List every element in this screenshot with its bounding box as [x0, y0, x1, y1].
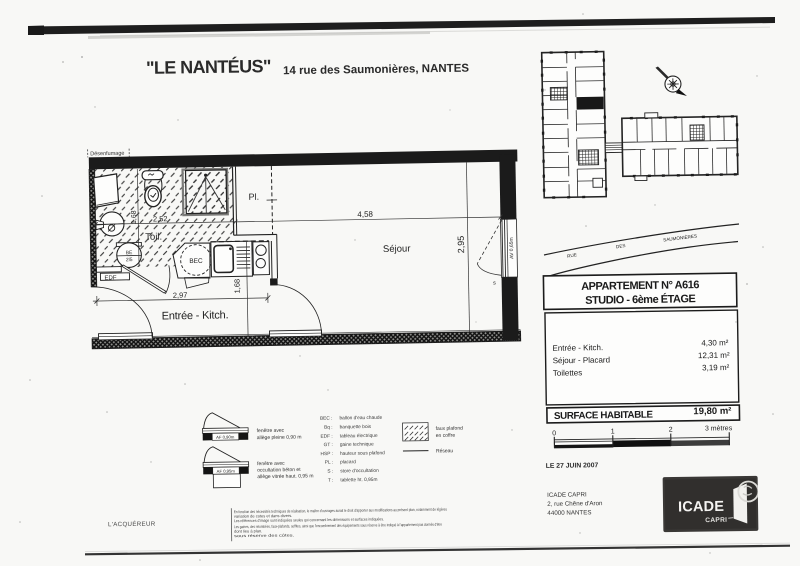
svg-text:3,19 m²: 3,19 m²: [702, 363, 730, 372]
svg-text:PL :: PL :: [325, 460, 333, 466]
svg-text:EDF :: EDF :: [320, 434, 332, 440]
svg-text:3 mètres: 3 mètres: [705, 425, 733, 432]
svg-text:BEC :: BEC :: [320, 416, 333, 422]
svg-text:fenêtre avec: fenêtre avec: [257, 428, 285, 434]
svg-text:fenêtre avec: fenêtre avec: [257, 461, 285, 467]
svg-text:4,58: 4,58: [357, 210, 373, 219]
svg-text:12,31 m²: 12,31 m²: [698, 351, 730, 360]
svg-text:1,68: 1,68: [131, 210, 138, 224]
svg-text:T :: T :: [328, 478, 334, 484]
svg-text:Entrée - Kitch.: Entrée - Kitch.: [162, 309, 229, 322]
svg-text:Toilettes: Toilettes: [553, 368, 582, 377]
svg-text:AV 0,65m: AV 0,65m: [509, 237, 515, 259]
svg-text:2,95: 2,95: [456, 236, 466, 254]
svg-text:banquette bois: banquette bois: [340, 424, 372, 430]
svg-text:en coffre: en coffre: [436, 433, 456, 439]
svg-text:ICADE: ICADE: [678, 499, 724, 516]
svg-text:L'ACQUÉREUR: L'ACQUÉREUR: [108, 521, 156, 529]
svg-text:S :: S :: [327, 469, 333, 475]
svg-text:Bq :: Bq :: [324, 425, 333, 431]
svg-text:ICADE CAPRI: ICADE CAPRI: [547, 491, 587, 499]
svg-text:2l5: 2l5: [126, 257, 133, 263]
svg-text:EDF: EDF: [104, 275, 116, 281]
svg-text:LE 27 JUIN 2007: LE 27 JUIN 2007: [546, 462, 599, 470]
svg-text:HSP :: HSP :: [320, 451, 333, 457]
svg-text:2,97: 2,97: [173, 291, 188, 300]
svg-text:2,52: 2,52: [153, 214, 168, 223]
svg-text:1,68: 1,68: [233, 279, 242, 294]
svg-text:4,30 m²: 4,30 m²: [701, 338, 729, 347]
svg-text:store d'occultation: store d'occultation: [340, 468, 379, 475]
svg-text:Désenfumage: Désenfumage: [90, 151, 124, 158]
svg-text:ballon d'eau chaude: ballon d'eau chaude: [339, 415, 382, 422]
svg-text:BE: BE: [126, 250, 133, 256]
svg-text:19,80 m²: 19,80 m²: [693, 406, 731, 418]
svg-text:0: 0: [552, 430, 556, 437]
svg-text:allège vitrée haut. 0,95 m: allège vitrée haut. 0,95 m: [257, 473, 313, 480]
svg-text:Toil.: Toil.: [145, 232, 162, 243]
svg-text:44000 NANTES: 44000 NANTES: [547, 509, 591, 517]
svg-text:Entrée - Kitch.: Entrée - Kitch.: [552, 343, 603, 353]
svg-text:s: s: [493, 280, 496, 286]
svg-text:STUDIO - 6ème ÉTAGE: STUDIO - 6ème ÉTAGE: [585, 292, 695, 307]
svg-text:tableau électrique: tableau électrique: [340, 433, 378, 440]
svg-text:sous réserve des côtes.: sous réserve des côtes.: [234, 532, 294, 538]
svg-text:Réseau: Réseau: [436, 448, 454, 454]
svg-text:Séjour - Placard: Séjour - Placard: [553, 355, 610, 365]
svg-text:AF 0,90m: AF 0,90m: [216, 434, 235, 439]
svg-text:2, rue Chêne d'Aron: 2, rue Chêne d'Aron: [547, 500, 603, 508]
svg-text:Pl.: Pl.: [248, 192, 259, 202]
svg-text:tablette ht. 0,95m: tablette ht. 0,95m: [340, 477, 377, 484]
svg-text:Séjour: Séjour: [383, 243, 411, 255]
svg-text:faux plafond: faux plafond: [436, 426, 464, 432]
svg-text:allège pleine 0,90 m: allège pleine 0,90 m: [257, 434, 302, 441]
svg-text:APPARTEMENT N° A616: APPARTEMENT N° A616: [581, 279, 699, 293]
svg-text:BEC: BEC: [189, 258, 203, 265]
svg-text:AF 0,95m: AF 0,95m: [217, 468, 236, 473]
svg-text:placard: placard: [340, 459, 356, 465]
svg-text:1: 1: [611, 428, 615, 435]
svg-text:"LE NANTÉUS": "LE NANTÉUS": [146, 55, 271, 78]
svg-text:gaine technique: gaine technique: [340, 441, 374, 448]
svg-text:SURFACE HABITABLE: SURFACE HABITABLE: [554, 410, 654, 422]
svg-text:2: 2: [669, 427, 673, 434]
svg-text:CAPRI: CAPRI: [705, 517, 727, 524]
svg-text:hauteur sous plafond: hauteur sous plafond: [340, 450, 385, 457]
svg-text:GT :: GT :: [324, 442, 333, 448]
